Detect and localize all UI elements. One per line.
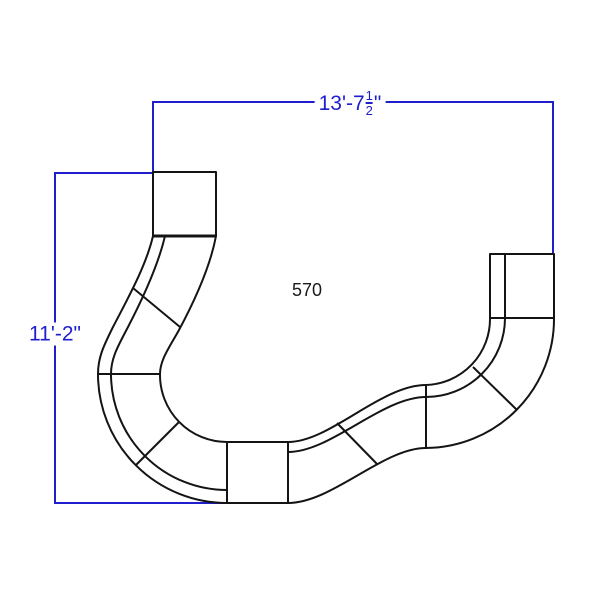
seat-module-bottom-center [227, 442, 288, 503]
floorplan-drawing [0, 0, 600, 600]
left-curve-backrest-line [111, 236, 227, 490]
left-curve-outer-edge [98, 236, 227, 503]
fraction-numerator: 1 [366, 89, 373, 102]
sofa-outline [98, 172, 554, 503]
divider-right-upper [473, 367, 517, 410]
height-dimension-text: 11'-2" [25, 323, 85, 346]
left-curve-inner-edge [160, 236, 227, 442]
width-dimension-main: 13'-7 [319, 93, 365, 114]
right-curve-backrest-line [426, 318, 505, 397]
width-dimension-text: 13'-712" [315, 88, 386, 118]
width-dimension-fraction: 12 [366, 89, 373, 117]
seat-module-top-left [153, 172, 216, 236]
divider-left-lower [136, 422, 179, 465]
middle-curve-top-edge [288, 385, 426, 442]
width-dimension-suffix: " [374, 93, 381, 114]
middle-curve-bottom-edge [288, 448, 426, 503]
dimension-lines [55, 102, 553, 503]
fraction-denominator: 2 [366, 102, 373, 117]
model-number-label: 570 [292, 281, 322, 299]
divider-middle [337, 423, 377, 464]
divider-left-upper [133, 288, 180, 327]
seat-module-top-right [490, 254, 554, 318]
diagram-canvas: 13'-712" 11'-2" 570 [0, 0, 600, 600]
width-dimension-line [153, 102, 553, 254]
